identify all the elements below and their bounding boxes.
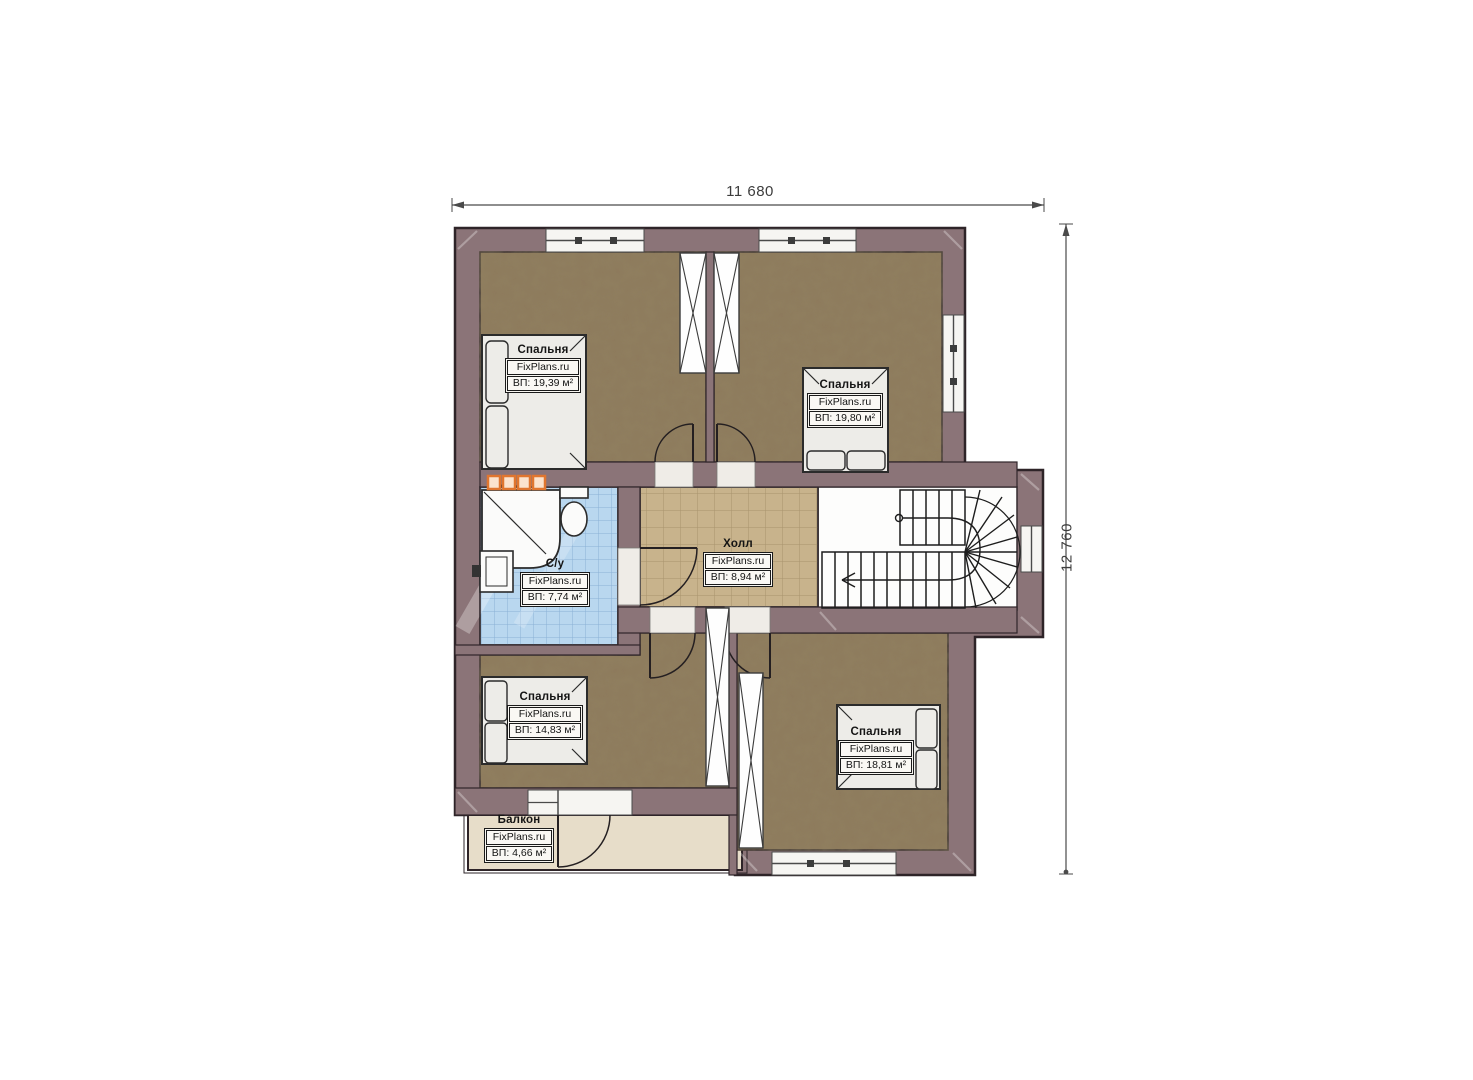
room-info-box: FixPlans.ru ВП: 19,80 м² (807, 393, 883, 428)
door-opening-bedroom-br (725, 607, 770, 633)
room-name: С/у (546, 558, 565, 570)
dimension-width-label: 11 680 (698, 183, 802, 200)
toilet (560, 487, 588, 536)
room-area: ВП: 8,94 м² (705, 570, 771, 585)
brand-label: FixPlans.ru (507, 360, 579, 375)
room-area: ВП: 7,74 м² (522, 590, 588, 605)
room-name: Спальня (819, 379, 870, 391)
wardrobe (706, 608, 729, 786)
room-area: ВП: 19,80 м² (809, 411, 881, 426)
room-label-bedroom-br: Спальня FixPlans.ru ВП: 18,81 м² (829, 726, 923, 775)
brand-label: FixPlans.ru (509, 707, 581, 722)
brand-label: FixPlans.ru (840, 742, 912, 757)
wardrobe (680, 253, 706, 373)
room-label-bathroom: С/у FixPlans.ru ВП: 7,74 м² (508, 558, 602, 607)
room-info-box: FixPlans.ru ВП: 18,81 м² (838, 740, 914, 775)
brand-label: FixPlans.ru (809, 395, 881, 410)
brand-label: FixPlans.ru (522, 574, 588, 589)
door-opening-bedroom-tl (655, 462, 693, 487)
pillow (807, 451, 845, 470)
wall-partition-bottom (729, 633, 737, 875)
balcony-door-window-assembly (528, 790, 632, 815)
wall-partition-top (706, 252, 714, 462)
room-label-bedroom-bl: Спальня FixPlans.ru ВП: 14,83 м² (498, 691, 592, 740)
door-opening-bedroom-bl (650, 607, 695, 633)
room-label-bedroom-tl: Спальня FixPlans.ru ВП: 19,39 м² (496, 344, 590, 393)
floor-plan-page: Спальня FixPlans.ru ВП: 19,39 м² Спальня… (0, 0, 1473, 1080)
window-top-right (759, 229, 856, 252)
brand-label: FixPlans.ru (486, 830, 552, 845)
room-info-box: FixPlans.ru ВП: 4,66 м² (484, 828, 554, 863)
room-info-box: FixPlans.ru ВП: 14,83 м² (507, 705, 583, 740)
pillow (847, 451, 885, 470)
dimension-height-label: 12 760 (1059, 512, 1076, 584)
room-name: Спальня (517, 344, 568, 356)
window-bedroom-tr-right (943, 315, 964, 412)
room-info-box: FixPlans.ru ВП: 19,39 м² (505, 358, 581, 393)
room-label-balcony: Балкон FixPlans.ru ВП: 4,66 м² (472, 814, 566, 863)
room-name: Холл (723, 538, 753, 550)
wardrobe (714, 253, 739, 373)
door-opening-bedroom-tr (717, 462, 755, 487)
room-area: ВП: 18,81 м² (840, 758, 912, 773)
wardrobe (739, 673, 763, 848)
room-area: ВП: 14,83 м² (509, 723, 581, 738)
room-info-box: FixPlans.ru ВП: 8,94 м² (703, 552, 773, 587)
room-label-bedroom-tr: Спальня FixPlans.ru ВП: 19,80 м² (798, 379, 892, 428)
pillow (486, 406, 508, 468)
room-name: Спальня (850, 726, 901, 738)
window-stairwell-right (1021, 526, 1042, 572)
door-opening-bathroom (618, 548, 640, 605)
window-bedroom-br-bottom (772, 852, 896, 875)
room-name: Балкон (498, 814, 541, 826)
room-name: Спальня (519, 691, 570, 703)
room-label-hall: Холл FixPlans.ru ВП: 8,94 м² (691, 538, 785, 587)
dimension-line-top (452, 198, 1044, 212)
room-area: ВП: 19,39 м² (507, 376, 579, 391)
brand-label: FixPlans.ru (705, 554, 771, 569)
room-info-box: FixPlans.ru ВП: 7,74 м² (520, 572, 590, 607)
room-area: ВП: 4,66 м² (486, 846, 552, 861)
wall-bathroom-bottom (455, 645, 640, 655)
window-top-left (546, 229, 644, 252)
